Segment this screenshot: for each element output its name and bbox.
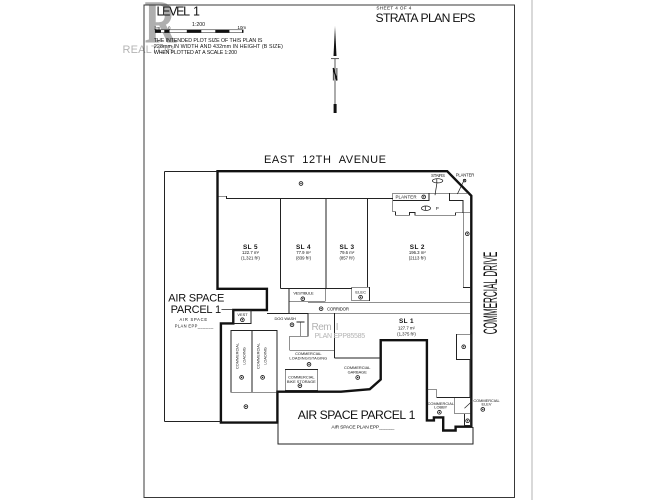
svg-text:ELEC: ELEC xyxy=(355,289,366,294)
svg-text:LOADING: LOADING xyxy=(263,347,268,365)
svg-text:P: P xyxy=(436,206,439,211)
svg-text:(1,375 ft²): (1,375 ft²) xyxy=(397,331,416,336)
svg-text:STRATA PLAN EPS: STRATA PLAN EPS xyxy=(376,11,476,25)
svg-text:PARCEL 1: PARCEL 1 xyxy=(171,304,222,316)
svg-text:COMMERCIAL: COMMERCIAL xyxy=(234,342,239,369)
svg-text:PLANTER: PLANTER xyxy=(456,172,475,177)
svg-text:GARBAGE: GARBAGE xyxy=(348,369,368,374)
svg-text:VEST: VEST xyxy=(237,312,248,317)
svg-text:PLAN EPP85585: PLAN EPP85585 xyxy=(315,333,366,340)
svg-text:PLAN EPP______: PLAN EPP______ xyxy=(175,324,214,329)
svg-text:127.7 m²: 127.7 m² xyxy=(398,325,416,330)
svg-text:AIR SPACE: AIR SPACE xyxy=(180,317,208,322)
svg-text:DOG WASH: DOG WASH xyxy=(275,316,297,321)
svg-text:LOADING/STAGING: LOADING/STAGING xyxy=(289,356,327,361)
svg-text:77.9 m²: 77.9 m² xyxy=(296,250,311,255)
svg-text:196.3 m²: 196.3 m² xyxy=(409,250,427,255)
svg-text:PLANTER: PLANTER xyxy=(396,195,417,200)
svg-text:STAIRS: STAIRS xyxy=(431,173,445,178)
svg-text:SL 1: SL 1 xyxy=(399,318,414,325)
svg-text:COMMERCIAL DRIVE: COMMERCIAL DRIVE xyxy=(482,252,503,335)
svg-text:1:200: 1:200 xyxy=(192,22,205,28)
svg-text:SHEET 4 OF 4: SHEET 4 OF 4 xyxy=(376,5,411,10)
svg-text:WHEN PLOTTED AT A SCALE 1:200: WHEN PLOTTED AT A SCALE 1:200 xyxy=(154,50,237,56)
svg-text:Rem I: Rem I xyxy=(312,322,339,333)
svg-text:AIR SPACE PARCEL 1: AIR SPACE PARCEL 1 xyxy=(298,408,416,422)
svg-text:10m: 10m xyxy=(238,25,247,30)
svg-text:CORRIDOR: CORRIDOR xyxy=(327,306,349,311)
svg-text:THE INTENDED PLOT SIZE OF THIS: THE INTENDED PLOT SIZE OF THIS PLAN IS xyxy=(154,38,263,44)
svg-text:(857 ft²): (857 ft²) xyxy=(339,255,355,260)
svg-text:(2113 ft²): (2113 ft²) xyxy=(409,255,427,260)
svg-text:EAST 12TH AVENUE: EAST 12TH AVENUE xyxy=(264,154,386,166)
svg-text:AIR SPACE: AIR SPACE xyxy=(168,292,224,304)
svg-text:LEVEL 1: LEVEL 1 xyxy=(157,4,201,18)
svg-text:BIKE STORAGE: BIKE STORAGE xyxy=(287,379,316,384)
svg-text:LOBBY: LOBBY xyxy=(434,405,447,410)
svg-text:ELEV: ELEV xyxy=(482,402,492,407)
svg-text:(1,321 ft²): (1,321 ft²) xyxy=(241,255,260,260)
svg-text:LOADING: LOADING xyxy=(242,347,247,365)
svg-text:79.6 m²: 79.6 m² xyxy=(340,250,355,255)
svg-text:(839 ft²): (839 ft²) xyxy=(296,255,312,260)
svg-text:COMMERCIAL: COMMERCIAL xyxy=(255,342,260,369)
svg-text:AIR SPACE PLAN EPP______: AIR SPACE PLAN EPP______ xyxy=(331,424,394,430)
svg-text:VESTIBULE: VESTIBULE xyxy=(293,291,314,296)
svg-text:122.7 m²: 122.7 m² xyxy=(242,250,260,255)
